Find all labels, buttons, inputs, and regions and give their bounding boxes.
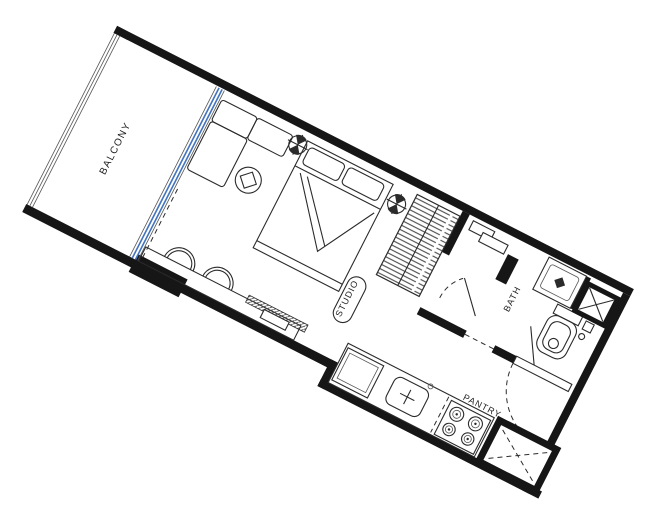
bath-partition-stub xyxy=(495,254,518,284)
burner xyxy=(466,414,485,433)
walls xyxy=(13,26,643,499)
floor-plan-drawing: BALCONY xyxy=(13,24,646,499)
floor-plan-canvas: BALCONY xyxy=(0,0,648,523)
kitchen-sink xyxy=(383,368,434,419)
threshold-dashes xyxy=(465,334,494,349)
bath-bottom-wall-a xyxy=(417,307,467,338)
room-pantry: PANTRY xyxy=(327,334,561,490)
studio-bottom-wall xyxy=(179,284,338,371)
burner xyxy=(459,431,476,448)
room-studio: STUDIO xyxy=(139,95,415,359)
balcony-label: BALCONY xyxy=(98,120,134,176)
balcony-bottom-wall xyxy=(22,204,137,269)
burner xyxy=(447,405,466,424)
quilt-fold xyxy=(272,173,375,266)
pillow xyxy=(341,167,385,202)
tp-holder xyxy=(582,321,594,333)
balcony-railing xyxy=(27,33,120,207)
bath-label: BATH xyxy=(501,284,522,313)
shower-door xyxy=(440,272,489,316)
stool-arc xyxy=(203,262,239,291)
shaft-dashed-x-icon xyxy=(479,420,557,490)
round-table xyxy=(231,163,266,198)
sliding-glass-door xyxy=(130,86,225,260)
pillow xyxy=(302,147,346,182)
ceiling-light-icon xyxy=(283,130,313,160)
drain xyxy=(578,333,586,341)
stool-arc xyxy=(165,242,201,271)
quilt-fold-echo xyxy=(283,177,349,246)
entry-door-leaf xyxy=(513,356,572,391)
top-wall xyxy=(113,26,633,296)
burner xyxy=(441,421,458,438)
door-swing xyxy=(440,273,463,303)
rotated-floor-plan: BALCONY xyxy=(13,24,646,499)
faucet-icon xyxy=(552,275,568,291)
bath-bottom-wall-b xyxy=(492,345,517,363)
